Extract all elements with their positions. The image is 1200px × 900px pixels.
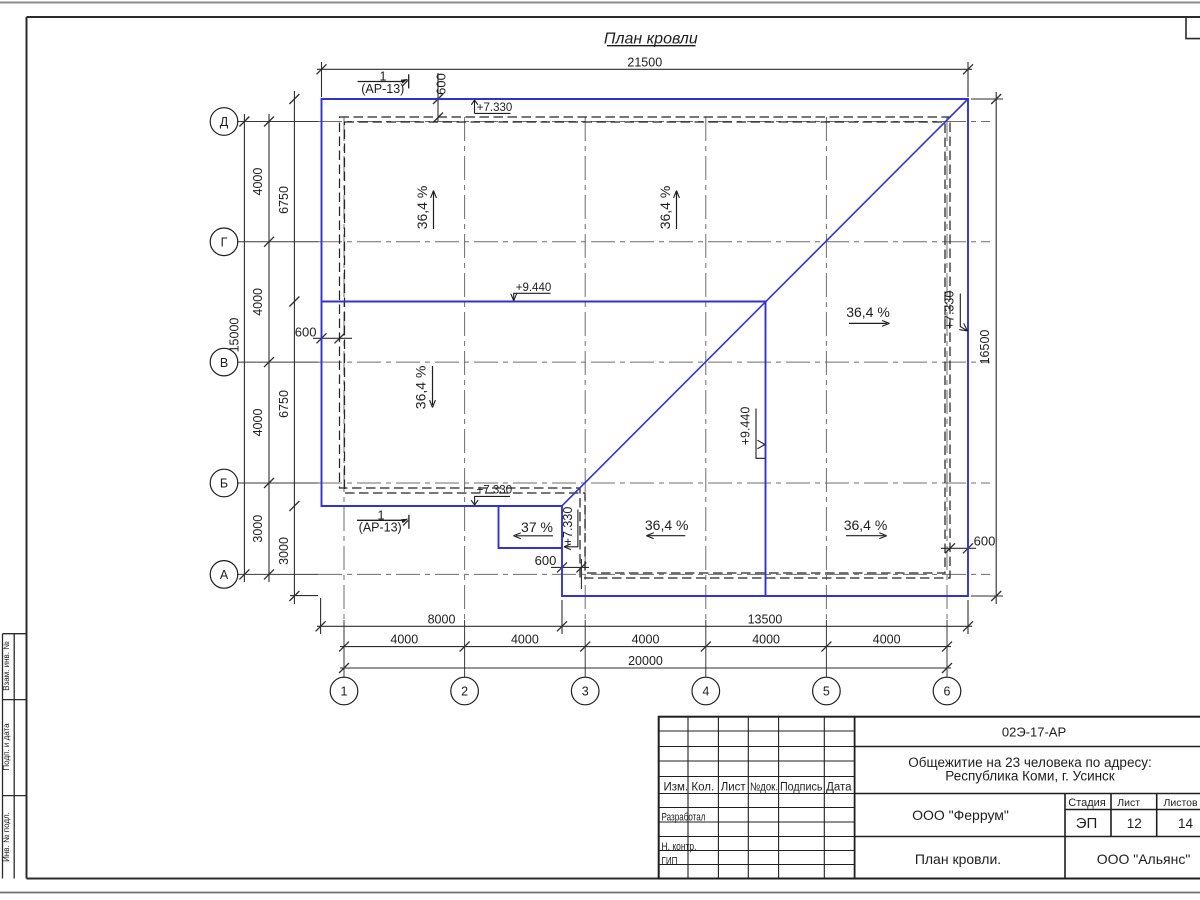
svg-text:36,4 %: 36,4 % xyxy=(413,366,429,410)
svg-text:4000: 4000 xyxy=(251,288,265,316)
svg-text:36,4 %: 36,4 % xyxy=(414,186,430,230)
svg-text:600: 600 xyxy=(974,533,996,548)
svg-text:20000: 20000 xyxy=(628,654,663,668)
svg-text:Стадия: Стадия xyxy=(1068,797,1106,809)
svg-text:4000: 4000 xyxy=(251,168,265,196)
svg-text:Листов: Листов xyxy=(1163,797,1198,809)
svg-text:21500: 21500 xyxy=(627,56,662,70)
svg-text:4000: 4000 xyxy=(632,633,660,647)
svg-text:36,4 %: 36,4 % xyxy=(657,186,673,230)
svg-text:4000: 4000 xyxy=(873,633,901,647)
svg-text:ООО "Альянс": ООО "Альянс" xyxy=(1097,851,1191,867)
svg-text:600: 600 xyxy=(535,553,557,568)
svg-text:А: А xyxy=(220,568,229,582)
svg-text:+7.330: +7.330 xyxy=(477,484,512,496)
svg-text:600: 600 xyxy=(433,73,448,95)
svg-text:Республика Коми, г. Усинск: Республика Коми, г. Усинск xyxy=(945,769,1115,784)
svg-text:13500: 13500 xyxy=(748,612,783,626)
svg-text:3: 3 xyxy=(582,685,589,699)
svg-text:5: 5 xyxy=(823,685,830,699)
svg-text:В: В xyxy=(220,356,228,370)
svg-text:Изм.: Изм. xyxy=(663,782,688,794)
svg-text:Кол.: Кол. xyxy=(691,782,714,794)
svg-text:600: 600 xyxy=(295,324,317,339)
svg-text:(АР-13): (АР-13) xyxy=(359,521,402,535)
svg-text:3000: 3000 xyxy=(251,515,265,543)
svg-text:4000: 4000 xyxy=(251,409,265,437)
svg-text:14: 14 xyxy=(1178,816,1194,831)
svg-text:4: 4 xyxy=(702,685,709,699)
svg-text:ГИП: ГИП xyxy=(662,856,678,868)
svg-text:4000: 4000 xyxy=(390,633,418,647)
svg-text:+9.440: +9.440 xyxy=(516,282,552,294)
svg-text:3000: 3000 xyxy=(277,537,291,565)
svg-text:6750: 6750 xyxy=(277,390,291,418)
svg-text:1: 1 xyxy=(341,685,348,699)
svg-text:Взам. инв. №: Взам. инв. № xyxy=(2,641,11,691)
svg-text:Б: Б xyxy=(220,477,228,491)
svg-text:№док.: №док. xyxy=(750,782,778,794)
svg-text:ЭП: ЭП xyxy=(1076,815,1098,832)
svg-text:+7.330: +7.330 xyxy=(943,291,957,330)
svg-text:ООО "Феррум": ООО "Феррум" xyxy=(912,807,1009,823)
svg-text:Лист: Лист xyxy=(1117,797,1140,809)
svg-text:Разработал: Разработал xyxy=(662,812,706,824)
svg-text:Подп. и дата: Подп. и дата xyxy=(2,723,11,771)
svg-text:8000: 8000 xyxy=(428,612,456,626)
svg-text:2: 2 xyxy=(461,685,468,699)
svg-text:+9.440: +9.440 xyxy=(739,407,753,446)
svg-text:Лист: Лист xyxy=(721,782,747,794)
svg-text:12: 12 xyxy=(1127,816,1142,831)
svg-text:36,4 %: 36,4 % xyxy=(844,517,888,533)
svg-text:4000: 4000 xyxy=(752,633,780,647)
svg-text:Дата: Дата xyxy=(826,782,852,794)
svg-text:37 %: 37 % xyxy=(521,519,553,535)
svg-text:36,4 %: 36,4 % xyxy=(645,517,689,533)
svg-text:План кровли.: План кровли. xyxy=(915,851,1001,867)
svg-text:Д: Д xyxy=(220,115,229,129)
svg-text:15000: 15000 xyxy=(228,318,242,353)
svg-text:Подпись: Подпись xyxy=(780,780,823,794)
svg-text:02Э-17-АР: 02Э-17-АР xyxy=(1002,725,1066,740)
svg-text:6750: 6750 xyxy=(277,186,291,214)
svg-text:4000: 4000 xyxy=(511,633,539,647)
svg-text:+7.330: +7.330 xyxy=(477,102,513,114)
svg-text:36,4 %: 36,4 % xyxy=(846,304,890,320)
svg-text:Инв. № подл.: Инв. № подл. xyxy=(2,812,11,862)
svg-text:16500: 16500 xyxy=(978,330,992,365)
svg-text:План кровли: План кровли xyxy=(604,31,698,48)
svg-text:Г: Г xyxy=(221,236,228,250)
svg-text:6: 6 xyxy=(944,685,951,699)
svg-text:Н. контр.: Н. контр. xyxy=(662,841,697,853)
svg-text:(АР-13): (АР-13) xyxy=(361,82,404,96)
svg-text:+7.330: +7.330 xyxy=(561,507,575,546)
